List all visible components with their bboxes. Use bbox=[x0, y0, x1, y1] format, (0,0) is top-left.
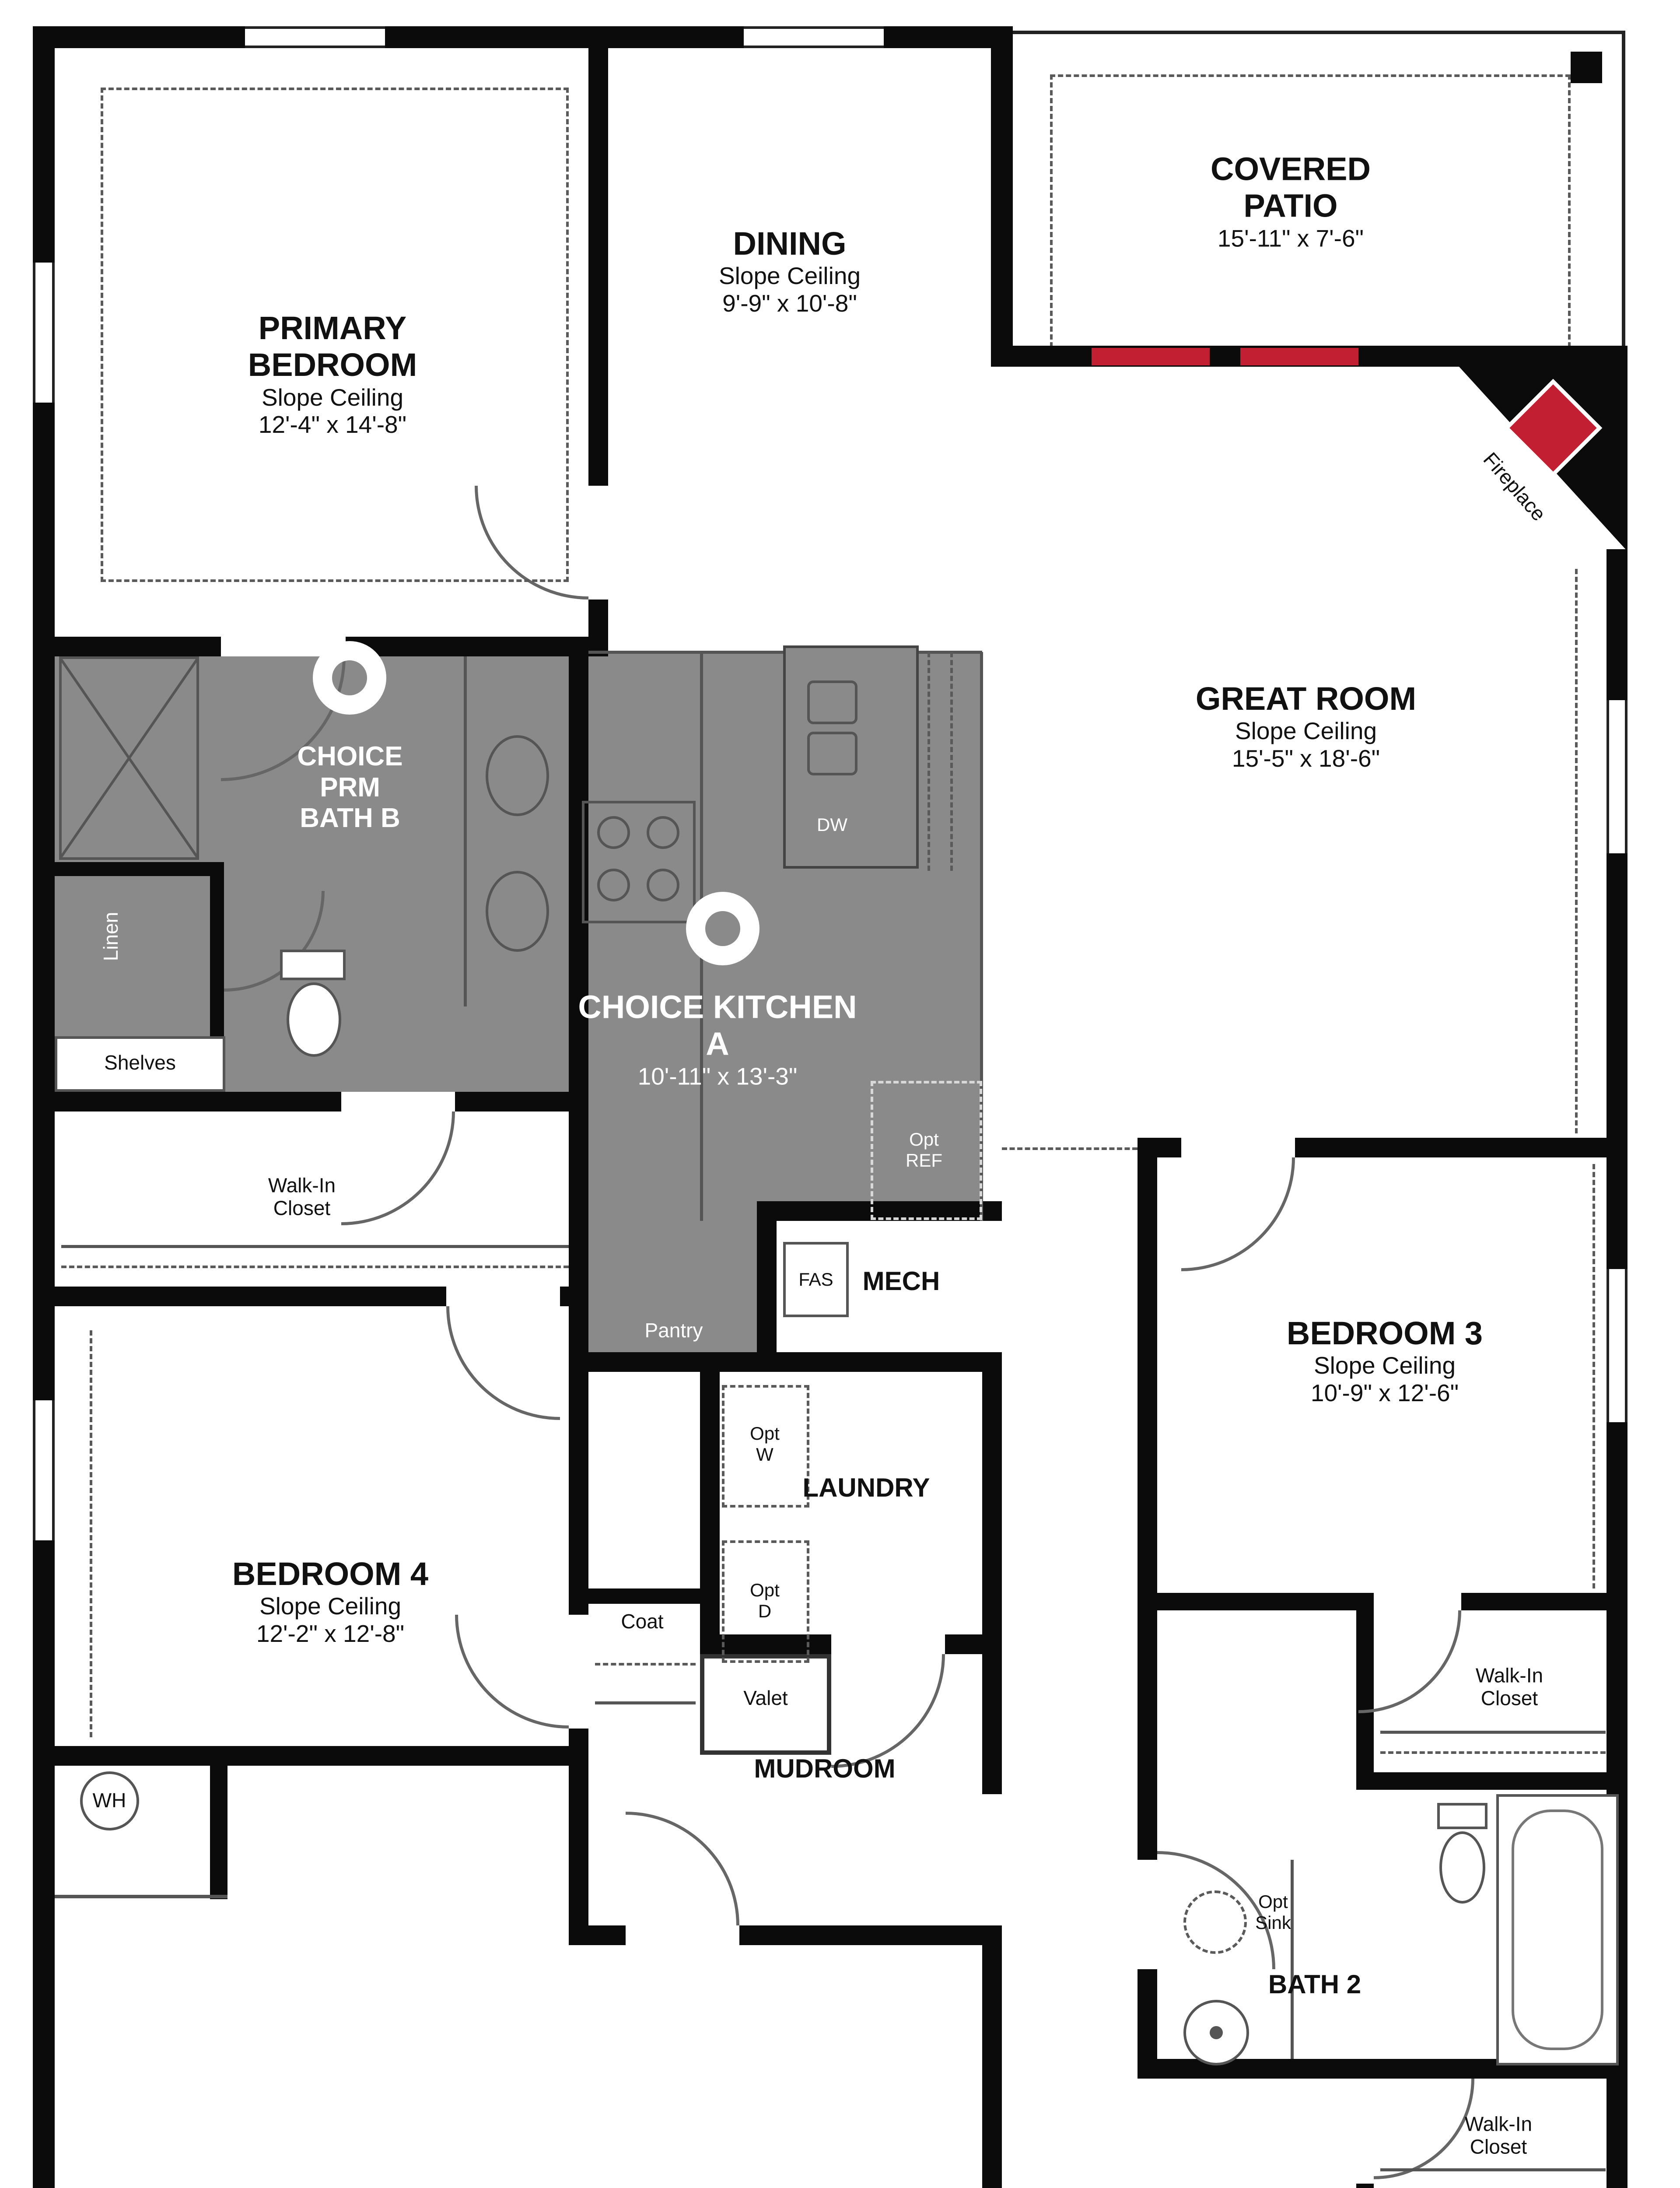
walk-in-closet-label-bedroom2: Walk-In Closet bbox=[1448, 2113, 1549, 2159]
bath2-left-wall-a bbox=[1137, 1613, 1157, 1860]
closet-shelf-dashed bbox=[61, 1266, 569, 1268]
closet-top-wall-b bbox=[455, 1092, 588, 1112]
exterior-wall-right-a bbox=[1606, 549, 1627, 700]
window-primary-top bbox=[245, 26, 385, 48]
walk-in-closet-label-bedroom3: Walk-In Closet bbox=[1459, 1664, 1560, 1710]
toilet2-tank-icon bbox=[1437, 1803, 1487, 1829]
floor-plan: Fireplace bbox=[0, 0, 1680, 2188]
burner-icon-2 bbox=[647, 816, 679, 849]
wh-nook-wall bbox=[210, 1766, 227, 1899]
patio-door-red-bar-2 bbox=[1240, 348, 1358, 365]
wic2-left-wall-a bbox=[1356, 2059, 1374, 2079]
door-arc-walk-in-closet bbox=[341, 1112, 455, 1225]
coat-bottom-line bbox=[595, 1701, 696, 1704]
wh-label: WH bbox=[93, 1789, 126, 1812]
room-label-laundry: LAUNDRY bbox=[802, 1473, 930, 1503]
bath2-counter-line bbox=[1291, 1860, 1294, 2059]
exterior-wall-top-a bbox=[33, 26, 245, 48]
door-arc-laundry bbox=[831, 1654, 945, 1768]
bath-top-wall-a bbox=[33, 637, 221, 656]
wic2-left-wall-b bbox=[1356, 2184, 1374, 2188]
bedroom4-right-wall-a bbox=[569, 1287, 588, 1615]
vanity-counter-line bbox=[464, 656, 467, 1006]
sink-icon-2 bbox=[486, 871, 549, 952]
door-arc-wic3 bbox=[1358, 1610, 1461, 1713]
closet-rod-line bbox=[61, 1245, 569, 1248]
opt-ref-label: Opt REF bbox=[896, 1129, 952, 1171]
mudroom-bottom-wall-a bbox=[569, 1925, 626, 1945]
wic3-bottom-wall bbox=[1356, 1772, 1627, 1790]
walk-in-closet-label-primary: Walk-In Closet bbox=[252, 1174, 352, 1220]
patio-corner-post bbox=[1571, 52, 1602, 83]
room-label-kitchen: CHOICE KITCHEN A 10'-11" x 13'-3" bbox=[577, 989, 857, 1090]
room-label-bedroom3: BEDROOM 3 Slope Ceiling 10'-9" x 12'-6" bbox=[1210, 1315, 1560, 1407]
linen-top-wall bbox=[55, 862, 210, 876]
island-sink-icon-1 bbox=[807, 680, 857, 724]
sink-icon-1 bbox=[486, 735, 549, 816]
bedroom4-slope-line bbox=[90, 1330, 92, 1737]
toilet2-bowl-icon bbox=[1439, 1831, 1485, 1904]
door-arc-bedroom4-closet-side bbox=[446, 1306, 560, 1420]
island-bar-dashed-1 bbox=[927, 652, 930, 871]
room-label-bedroom4: BEDROOM 4 Slope Ceiling 12'-2" x 12'-8" bbox=[155, 1556, 505, 1648]
window-dining-top bbox=[744, 26, 884, 48]
window-primary-left bbox=[33, 263, 55, 403]
shelves-label: Shelves bbox=[104, 1051, 176, 1074]
toilet-bowl-icon bbox=[287, 982, 341, 1057]
mudroom-bottom-wall-b bbox=[739, 1925, 1002, 1945]
closet-top-wall-a bbox=[33, 1092, 341, 1112]
window-bedroom4-left bbox=[33, 1400, 55, 1540]
laundry-top-wall bbox=[569, 1352, 1002, 1372]
laundry-left-wall bbox=[700, 1372, 720, 1654]
bedroom4-bottom-wall bbox=[33, 1746, 588, 1766]
bedroom3-bottom-wall-a bbox=[1157, 1593, 1356, 1610]
bedroom3-top-wall-a bbox=[1157, 1138, 1181, 1157]
linen-label: Linen bbox=[99, 912, 122, 961]
room-label-great-room: GREAT ROOM Slope Ceiling 15'-5" x 18'-6" bbox=[1109, 680, 1503, 772]
garage-foyer-wall bbox=[982, 1925, 1002, 2188]
fas-label: FAS bbox=[798, 1269, 833, 1290]
stove-icon bbox=[582, 801, 696, 923]
tub-basin-icon bbox=[1512, 1809, 1603, 2050]
room-label-dining: DINING Slope Ceiling 9'-9" x 10'-8" bbox=[615, 225, 965, 317]
burner-icon-1 bbox=[597, 816, 630, 849]
sink2-drain-icon bbox=[1210, 2026, 1223, 2039]
wh-nook-line bbox=[55, 1895, 227, 1898]
door-arc-garage-mudroom bbox=[626, 1812, 739, 1925]
opt-washer-label: Opt W bbox=[745, 1423, 784, 1465]
primary-dining-wall-stub bbox=[588, 600, 608, 656]
kitchen-light-icon bbox=[686, 892, 759, 965]
dw-label: DW bbox=[817, 814, 847, 835]
mech-left-wall bbox=[757, 1201, 777, 1372]
room-label-bath2: BATH 2 bbox=[1256, 1970, 1374, 1999]
room-label-covered-patio: COVERED PATIO 15'-11" x 7'-6" bbox=[1168, 151, 1413, 252]
coat-rod-dashed bbox=[595, 1663, 696, 1666]
primary-dining-wall bbox=[588, 26, 608, 486]
burner-icon-3 bbox=[597, 869, 630, 901]
toilet-tank-icon bbox=[280, 950, 346, 980]
hall-ceiling-dashed bbox=[1002, 1147, 1137, 1150]
island-sink-icon-2 bbox=[807, 732, 857, 775]
bath-top-wall-b bbox=[346, 637, 588, 656]
valet-label: Valet bbox=[743, 1687, 787, 1709]
coat-top-wall bbox=[588, 1588, 700, 1604]
door-arc-bedroom3 bbox=[1181, 1157, 1295, 1271]
great-room-slope-line bbox=[1575, 569, 1578, 1133]
bedroom4-top-wall-a bbox=[33, 1287, 446, 1306]
burner-icon-4 bbox=[647, 869, 679, 901]
window-great-room-right bbox=[1606, 700, 1627, 853]
bedroom3-left-wall bbox=[1137, 1138, 1157, 1613]
room-label-primary-bedroom: PRIMARY BEDROOM Slope Ceiling 12'-4" x 1… bbox=[179, 310, 486, 438]
bedroom3-bottom-wall-b bbox=[1461, 1593, 1627, 1610]
pantry-label: Pantry bbox=[645, 1319, 703, 1342]
dining-patio-wall bbox=[991, 26, 1013, 367]
patio-door-red-bar-1 bbox=[1092, 348, 1210, 365]
room-label-mudroom: MUDROOM bbox=[754, 1754, 895, 1784]
room-label-mech: MECH bbox=[863, 1266, 940, 1296]
bath-light-icon bbox=[313, 641, 386, 715]
bedroom3-top-wall-b bbox=[1295, 1138, 1627, 1157]
wic3-shelf-dashed bbox=[1380, 1751, 1606, 1754]
island-bar-dashed-2 bbox=[950, 652, 953, 871]
bedroom3-slope-line bbox=[1592, 1164, 1595, 1588]
shower-glass-icon bbox=[59, 656, 199, 860]
window-bedroom3-right bbox=[1606, 1269, 1627, 1422]
room-label-prm-bath: CHOICE PRM BATH B bbox=[280, 741, 420, 834]
opt-dryer-label: Opt D bbox=[745, 1580, 784, 1622]
wic2-rod-line bbox=[1380, 2168, 1606, 2171]
exterior-wall-top-b bbox=[385, 26, 744, 48]
exterior-wall-right-b bbox=[1606, 853, 1627, 1269]
hall-wall-a bbox=[982, 1372, 1002, 1794]
linen-right-wall bbox=[210, 862, 224, 1036]
wic3-rod-line bbox=[1380, 1731, 1606, 1734]
opt-sink-icon bbox=[1183, 1890, 1247, 1954]
coat-label: Coat bbox=[621, 1610, 663, 1633]
opt-sink-label: Opt Sink bbox=[1247, 1891, 1299, 1933]
